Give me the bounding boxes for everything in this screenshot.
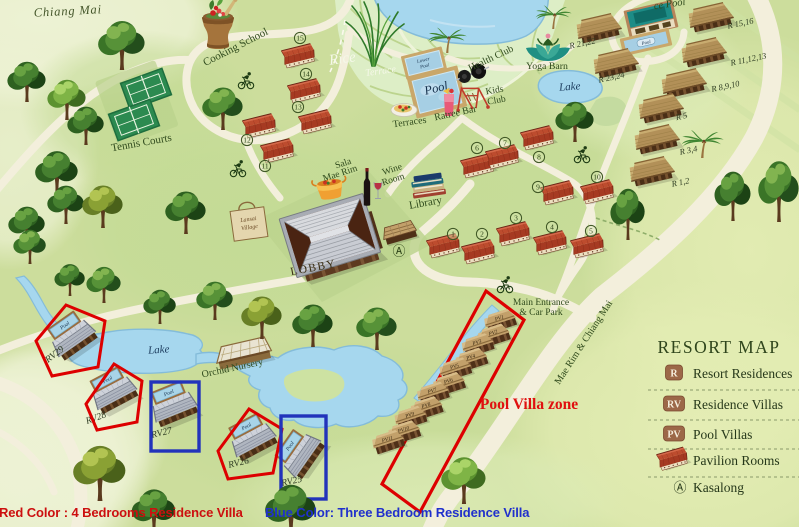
svg-text:8: 8 [537, 153, 541, 162]
svg-text:Pavilion Rooms: Pavilion Rooms [693, 453, 780, 468]
svg-text:15: 15 [296, 34, 304, 43]
svg-text:5: 5 [589, 227, 593, 236]
svg-text:& Car Park: & Car Park [519, 308, 563, 318]
svg-text:R: R [670, 369, 678, 380]
svg-text:RESORT MAP: RESORT MAP [657, 337, 780, 357]
svg-text:11: 11 [261, 162, 268, 171]
svg-text:12: 12 [243, 136, 251, 145]
svg-text:Lake: Lake [558, 80, 581, 94]
svg-text:1: 1 [451, 230, 455, 239]
svg-text:14: 14 [302, 70, 310, 79]
svg-text:Pool Villa zone: Pool Villa zone [480, 396, 578, 413]
svg-text:Lake: Lake [147, 343, 170, 357]
svg-text:Red Color : 4 Bedrooms Residen: Red Color : 4 Bedrooms Residence Villa [0, 505, 244, 520]
svg-text:Kasalong: Kasalong [693, 480, 744, 495]
svg-text:Ⓐ: Ⓐ [392, 244, 405, 259]
svg-text:3: 3 [514, 214, 518, 223]
svg-text:7: 7 [503, 139, 507, 148]
svg-text:2: 2 [480, 230, 484, 239]
svg-text:Residence Villas: Residence Villas [693, 397, 783, 412]
svg-text:Blue Color: Three Bedroom Resi: Blue Color: Three Bedroom Residence Vill… [265, 505, 530, 520]
svg-text:RV: RV [667, 400, 682, 411]
svg-text:PV: PV [667, 430, 681, 441]
svg-text:Pool Villas: Pool Villas [693, 427, 752, 442]
svg-text:Ⓐ: Ⓐ [673, 480, 686, 495]
svg-text:10: 10 [593, 173, 601, 182]
svg-text:6: 6 [475, 144, 479, 153]
svg-text:9: 9 [536, 183, 540, 192]
svg-text:Yoga Barn: Yoga Barn [526, 61, 568, 72]
svg-text:Resort Residences: Resort Residences [693, 366, 792, 381]
svg-text:Main Entrance: Main Entrance [513, 298, 569, 308]
svg-text:13: 13 [294, 103, 302, 112]
svg-text:4: 4 [550, 223, 554, 232]
